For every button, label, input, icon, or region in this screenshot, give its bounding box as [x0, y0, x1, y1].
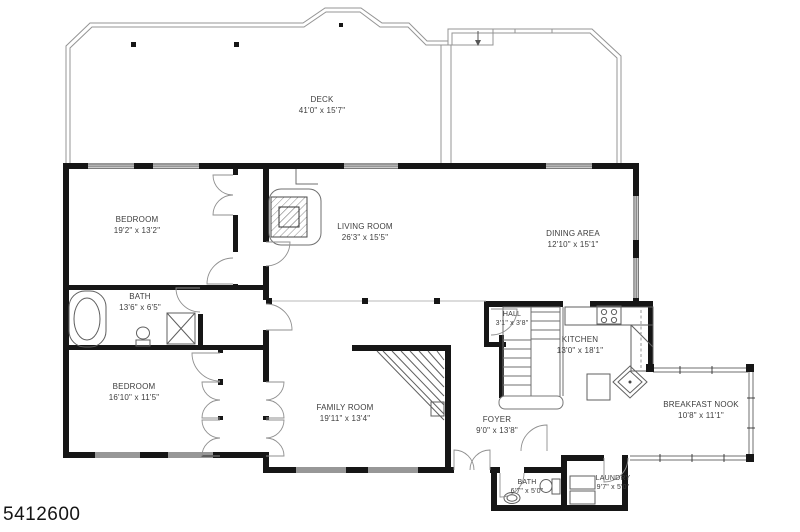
room-label-family-room: FAMILY ROOM19'11" x 13'4" — [316, 402, 373, 424]
room-label-bath-1: BATH13'6" x 6'5" — [119, 291, 161, 313]
listing-id-watermark: 5412600 — [3, 504, 80, 526]
room-label-living-room: LIVING ROOM26'3" x 15'5" — [337, 221, 393, 243]
fireplace — [269, 169, 321, 245]
room-label-hall: HALL3'1" x 3'8" — [496, 310, 529, 328]
open-plan-columns — [266, 298, 486, 304]
washer-dryer — [570, 476, 595, 504]
shower — [167, 313, 195, 344]
room-label-bedroom-1: BEDROOM19'2" x 13'2" — [114, 214, 160, 236]
staircase-main — [377, 351, 444, 420]
room-label-bath-2: BATH6'7" x 5'0" — [511, 478, 544, 496]
room-label-dining-area: DINING AREA12'10" x 15'1" — [546, 228, 600, 250]
room-label-foyer: FOYER9'0" x 13'8" — [476, 414, 518, 436]
toilet — [136, 327, 150, 346]
bathtub — [69, 291, 106, 347]
windows — [88, 163, 639, 474]
room-label-breakfast-nook: BREAKFAST NOOK10'8" x 11'1" — [663, 399, 739, 421]
room-label-kitchen: KITCHEN13'0" x 18'1" — [557, 334, 603, 356]
floor-plan: DECK41'0" x 15'7" BEDROOM19'2" x 13'2" L… — [0, 0, 800, 532]
deck-railing — [66, 8, 621, 163]
room-label-laundry: LAUNDRY9'7" x 5'0" — [596, 474, 631, 492]
floor-plan-drawing — [0, 0, 800, 532]
stove-icon — [597, 306, 621, 324]
room-label-deck: DECK41'0" x 15'7" — [299, 94, 345, 116]
room-label-bedroom-2: BEDROOM16'10" x 11'5" — [109, 381, 160, 403]
